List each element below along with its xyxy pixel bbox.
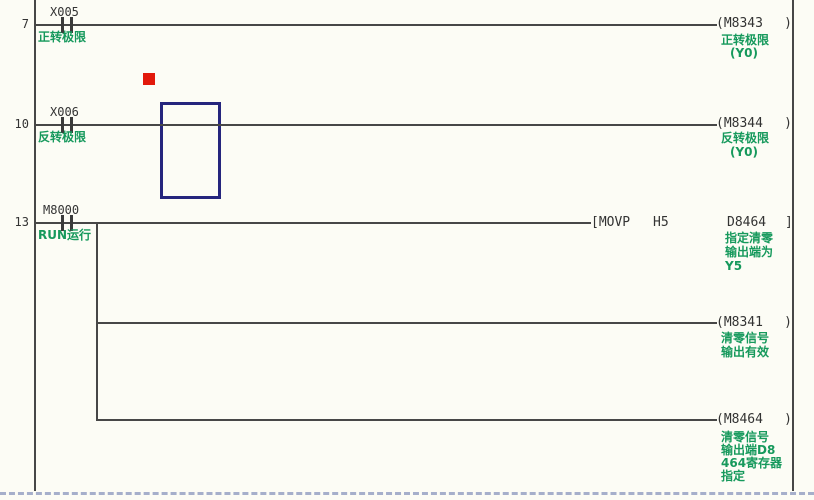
edit-marker xyxy=(143,73,155,85)
instruction-comment-line: 输出端为 xyxy=(725,246,773,259)
output-coil[interactable]: (M8344 ) xyxy=(716,117,792,130)
device-label: M8000 xyxy=(43,204,79,217)
selection-cursor[interactable] xyxy=(160,102,221,199)
rung-wire xyxy=(36,124,717,126)
branch-wire xyxy=(97,419,717,421)
ladder-diagram: 7 X005 正转极限 (M8343 ) 正转极限 (Y0) 10 X006 反… xyxy=(0,0,814,500)
coil-device-label: (M8341 xyxy=(716,315,763,330)
left-power-rail xyxy=(34,0,36,491)
rung-wire xyxy=(36,24,717,26)
contact-comment: 正转极限 xyxy=(38,31,86,44)
instruction-operand2: D8464 xyxy=(727,216,766,229)
contact-comment: RUN运行 xyxy=(38,229,91,242)
output-coil[interactable]: (M8341 ) xyxy=(716,316,792,329)
step-number: 13 xyxy=(0,216,29,229)
step-number: 10 xyxy=(0,118,29,131)
coil-close-paren: ) xyxy=(784,412,792,427)
coil-comment-line: 清零信号 xyxy=(721,332,769,345)
branch-wire xyxy=(97,322,717,324)
device-label: X005 xyxy=(50,6,79,19)
instruction-operand1: H5 xyxy=(653,216,669,229)
output-coil[interactable]: (M8343 ) xyxy=(716,17,792,30)
coil-comment-line: (Y0) xyxy=(730,47,758,60)
device-label: X006 xyxy=(50,106,79,119)
instruction-comment-line: Y5 xyxy=(725,260,742,273)
page-break-line xyxy=(0,492,814,495)
coil-device-label: (M8343 xyxy=(716,16,763,31)
contact-comment: 反转极限 xyxy=(38,131,86,144)
rung-wire xyxy=(36,222,591,224)
step-number: 7 xyxy=(0,18,29,31)
coil-device-label: (M8344 xyxy=(716,116,763,131)
coil-comment-line: 指定 xyxy=(721,470,745,483)
coil-comment-line: 反转极限 xyxy=(721,132,769,145)
right-power-rail xyxy=(792,0,794,491)
instruction-open-bracket: [MOVP xyxy=(591,216,630,229)
coil-comment-line: 输出有效 xyxy=(721,346,769,359)
instruction-close-bracket: ] xyxy=(785,216,793,229)
coil-comment-line: (Y0) xyxy=(730,146,758,159)
output-coil[interactable]: (M8464 ) xyxy=(716,413,792,426)
coil-device-label: (M8464 xyxy=(716,412,763,427)
instruction-opcode: MOVP xyxy=(599,215,630,230)
coil-close-paren: ) xyxy=(784,116,792,131)
coil-close-paren: ) xyxy=(784,16,792,31)
coil-close-paren: ) xyxy=(784,315,792,330)
instruction-comment-line: 指定清零 xyxy=(725,232,773,245)
